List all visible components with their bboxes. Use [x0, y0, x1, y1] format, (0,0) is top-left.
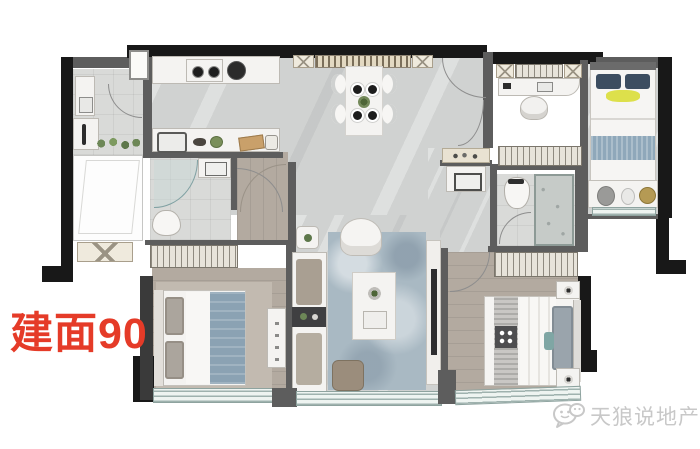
bath1-toilet	[152, 210, 181, 236]
vanity-decor-shelf	[442, 148, 490, 163]
nightstand-top	[556, 281, 580, 299]
left-wall-foot	[42, 266, 73, 282]
tv-screen	[431, 269, 437, 355]
balcony-top-wall	[64, 57, 132, 68]
kids-duvet-fold-line	[591, 118, 655, 120]
washer-door	[82, 124, 86, 145]
floor-plan-image: 建面90 天狼说地产	[0, 0, 700, 449]
place-setting-3	[351, 109, 364, 122]
sofa	[292, 252, 327, 392]
master-dresser	[267, 308, 286, 368]
side-table-plant	[304, 234, 312, 242]
dining-chair-tl	[331, 74, 346, 94]
sideboard-x-left	[293, 55, 314, 68]
sofa-side-table	[292, 307, 326, 327]
master-pillow-top	[165, 297, 184, 335]
nightstand-lamp-top	[564, 286, 573, 295]
master-headboard	[154, 290, 164, 386]
bedroom2-pillows	[552, 306, 573, 370]
master-wardrobe	[150, 245, 238, 268]
study-x-left	[496, 64, 514, 78]
burner-left	[192, 66, 204, 78]
living-armchair	[340, 218, 382, 256]
living-ottoman	[332, 360, 364, 391]
place-setting-4	[366, 109, 379, 122]
nightstand-lamp-bottom	[564, 375, 573, 384]
study-wardrobe	[498, 146, 582, 166]
dining-table	[345, 66, 383, 136]
left-exterior-wall	[61, 57, 73, 272]
bedroom2-wardrobe	[494, 252, 578, 277]
bedroom2-teal-pillow	[544, 332, 554, 350]
sideboard-x-right	[412, 55, 433, 68]
bath2-toilet	[504, 177, 530, 209]
hall-vanity-basin	[446, 166, 486, 192]
kids-foot-bench	[588, 180, 658, 208]
kids-right-exterior-wall	[658, 57, 672, 218]
coffee-table-decor	[368, 287, 381, 300]
kids-window-sill	[592, 207, 656, 216]
dresser-knobs	[275, 317, 279, 361]
watermark-text: 天狼说地产	[590, 401, 700, 431]
window-mullion-left	[272, 388, 297, 407]
wechat-icon	[552, 401, 586, 431]
coffee-table-tray	[363, 311, 387, 329]
kids-yellow-blanket	[606, 90, 640, 102]
flex-void-area	[73, 155, 143, 241]
perfume-bottles	[451, 152, 481, 160]
study-chair	[520, 96, 548, 120]
sofa-table-bowl	[312, 314, 318, 320]
dining-chair-br	[382, 104, 397, 124]
master-sheet-fold	[186, 292, 210, 384]
bath2-toilet-tank	[508, 179, 524, 184]
living-floor-window	[296, 391, 442, 406]
desk-monitor	[537, 82, 553, 92]
kids-headboard	[590, 62, 656, 70]
plush-toy-brown	[639, 187, 656, 204]
fish-plate	[193, 138, 206, 146]
kitchen-sink	[157, 132, 187, 153]
bath2-kids-wall	[575, 168, 588, 252]
sofa-cushion-top	[296, 259, 322, 305]
utility-sink-cabinet	[75, 76, 95, 116]
jar	[265, 135, 278, 150]
place-setting-2	[366, 83, 379, 96]
table-center-plant	[358, 96, 370, 108]
bath1-washbasin	[198, 158, 231, 178]
kitchen-bottom-counter	[152, 128, 280, 152]
bath2-shower	[534, 174, 574, 246]
bath2-left-wall	[490, 170, 497, 252]
kids-pillow-right	[625, 74, 650, 89]
vanity-basin-bowl	[454, 173, 482, 191]
master-pillow-bottom	[165, 341, 184, 379]
dining-chair-tr	[382, 74, 397, 94]
cutting-board	[238, 134, 265, 151]
flex-area-outline	[78, 160, 140, 234]
vegetables	[210, 136, 223, 148]
place-setting-1	[351, 83, 364, 96]
kids-pillow-left	[596, 74, 621, 89]
study-shelf-slats	[515, 64, 563, 78]
pot-on-counter	[227, 61, 246, 80]
study-desk	[498, 78, 580, 96]
notch-wall-foot	[656, 260, 686, 274]
desk-laptop	[503, 83, 511, 89]
hall-right-wall	[288, 162, 296, 246]
utility-sink-basin	[79, 97, 93, 113]
plush-toy-white	[621, 188, 635, 205]
area-label: 建面90	[10, 299, 148, 361]
dining-chair-bl	[331, 104, 346, 124]
plant-side-table	[296, 226, 319, 249]
kitchen-window	[129, 50, 149, 80]
cooktop	[186, 59, 223, 82]
sofa-table-plant	[300, 313, 307, 320]
coffee-table	[352, 272, 396, 340]
master-duvet-blue	[210, 292, 245, 384]
plush-toy-gray	[597, 186, 615, 206]
bath1-basin-bowl	[205, 162, 227, 176]
notch-wall-vertical	[656, 218, 669, 264]
kids-blue-throw	[591, 136, 655, 160]
bedroom2-foot-blanket	[495, 326, 517, 348]
burner-right	[208, 66, 220, 78]
tv-panel	[426, 240, 441, 385]
watermark: 天狼说地产	[552, 401, 700, 431]
sofa-cushion-bottom	[296, 333, 322, 385]
window-mullion-right	[438, 370, 456, 404]
master-floor-window	[153, 388, 285, 403]
balcony-plants	[94, 136, 142, 151]
study-x-right	[564, 64, 582, 78]
equipment-box	[77, 242, 133, 262]
kitchen-top-counter	[152, 56, 280, 84]
